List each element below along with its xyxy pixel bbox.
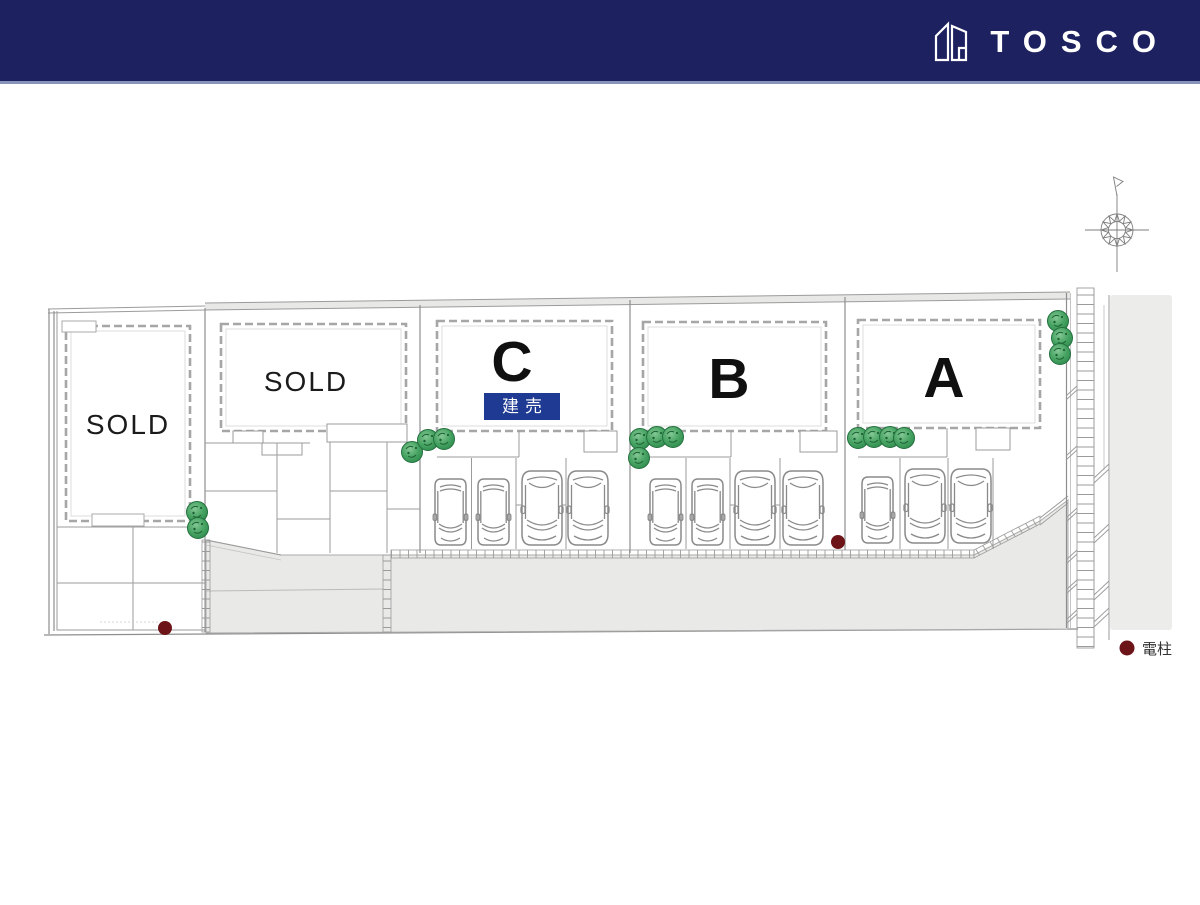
tree-icon <box>188 518 209 539</box>
right-road <box>1066 288 1172 648</box>
lot-a-label: A <box>923 346 964 410</box>
car-icon <box>433 479 468 545</box>
brand-logo: TOSCO <box>928 0 1170 84</box>
lot-sold-1-label: SOLD <box>86 409 170 440</box>
road-curb-left <box>202 540 210 632</box>
lot-b-label: B <box>708 347 749 411</box>
car-icon <box>567 471 609 545</box>
road-curb-top <box>391 550 974 558</box>
parcel-lines <box>205 424 420 553</box>
built-for-sale-badge: 建売 <box>484 393 560 420</box>
car-icon <box>690 479 725 545</box>
lot-sold-2-label: SOLD <box>264 366 348 397</box>
car-icon <box>734 471 776 545</box>
tree-icon <box>894 428 915 449</box>
utility-pole-dot <box>158 621 172 635</box>
header-bar: TOSCO <box>0 0 1200 84</box>
tree-icon <box>629 448 650 469</box>
legend-pole-icon <box>1120 641 1135 656</box>
sidewalk-ladder-strip <box>1077 288 1094 648</box>
legend: 電柱 <box>1120 641 1173 659</box>
built-for-sale-badge-label: 建売 <box>502 397 548 416</box>
tree-icon <box>663 427 684 448</box>
brand-wordmark: TOSCO <box>990 0 1170 84</box>
tree-icon <box>434 429 455 450</box>
top-boundary <box>48 292 1070 313</box>
car-icon <box>860 477 895 543</box>
lot-c-label: C <box>491 330 532 394</box>
north-compass-icon <box>1085 177 1149 272</box>
car-icon <box>904 469 946 543</box>
parking-grid <box>57 527 205 630</box>
lot-b: B <box>629 297 846 550</box>
house-logo-icon <box>928 20 974 64</box>
car-icon <box>521 471 563 545</box>
site-plan: SOLD SOLD <box>0 84 1200 900</box>
tree-icon <box>1050 344 1071 365</box>
road-divider <box>383 555 391 632</box>
car-icon <box>950 469 992 543</box>
right-road-surface <box>1110 295 1172 630</box>
utility-pole-dot <box>831 535 845 549</box>
lot-sold-2: SOLD <box>205 305 420 553</box>
legend-label: 電柱 <box>1142 641 1172 658</box>
lot-sold-1: SOLD <box>57 308 209 635</box>
car-icon <box>476 479 511 545</box>
lot-a: A <box>848 311 1073 550</box>
car-icon <box>782 471 824 545</box>
lot-c: C 建売 <box>402 300 631 553</box>
site-plan-svg: SOLD SOLD <box>0 84 1200 900</box>
car-icon <box>648 479 683 545</box>
